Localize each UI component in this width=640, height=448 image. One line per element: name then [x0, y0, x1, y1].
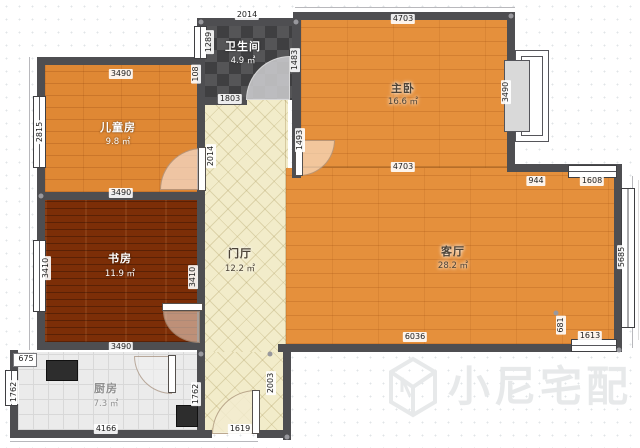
dim-line	[295, 7, 515, 8]
dim-study-right: 3410	[188, 265, 198, 289]
dim-hall-vertical: 2014	[206, 144, 216, 168]
corner-dot	[199, 352, 204, 357]
corner-dot	[199, 20, 204, 25]
dim-living-bottom: 6036	[403, 332, 427, 342]
room-area-living: 28.2 ㎡	[438, 259, 468, 271]
corner-dot	[509, 14, 514, 19]
boundary-hall-living	[285, 100, 286, 344]
room-label-living: 客厅	[441, 243, 465, 259]
dim-kitchen-bottom: 4166	[94, 424, 118, 434]
corner-dot	[294, 20, 299, 25]
wall	[507, 12, 515, 60]
stove	[46, 360, 78, 381]
dim-kitchen-flue: 675	[16, 354, 35, 364]
dim-living-bottom-window: 1613	[578, 331, 602, 341]
room-area-bathroom: 4.9 ㎡	[231, 54, 256, 66]
room-label-master: 主卧	[391, 80, 415, 96]
watermark-text: 小尼宅配	[448, 366, 632, 408]
dim-hall-master-wall: 1493	[295, 128, 305, 152]
corner-dot	[617, 348, 622, 353]
dim-hall-lower-right: 2003	[266, 371, 276, 395]
corner-dot	[285, 435, 290, 440]
dim-children-left: 2815	[35, 120, 45, 144]
dim-living-corner: 681	[556, 315, 566, 334]
dim-living-right: 5685	[617, 245, 627, 269]
sink-unit	[176, 405, 198, 427]
dim-living-top-segment: 944	[526, 176, 545, 186]
room-area-kitchen: 7.3 ㎡	[94, 397, 119, 409]
corner-dot	[268, 352, 273, 357]
room-label-kitchen: 厨房	[94, 380, 118, 396]
floor-plan: 儿童房 9.8 ㎡ 卫生间 4.9 ㎡ 主卧 16.6 ㎡ 门厅 12.2 ㎡ …	[0, 0, 640, 448]
room-area-children: 9.8 ㎡	[106, 135, 131, 147]
door-leaf-kitchen	[168, 355, 176, 393]
dim-entry-bottom: 1619	[228, 424, 252, 434]
dim-study-bottom: 3490	[109, 342, 133, 352]
dim-line	[29, 57, 30, 350]
dim-children-top: 3490	[109, 69, 133, 79]
dim-bath-right: 1483	[290, 48, 300, 72]
door-leaf-children	[198, 147, 206, 191]
dim-study-left: 3410	[41, 256, 51, 280]
room-label-children: 儿童房	[100, 119, 136, 135]
room-area-master: 16.6 ㎡	[388, 95, 418, 107]
room-area-study: 11.9 ㎡	[105, 267, 135, 279]
watermark: 小尼宅配	[388, 356, 632, 418]
dim-master-top: 4703	[391, 14, 415, 24]
dim-living-top-window: 1608	[580, 176, 604, 186]
dim-bath-bottom: 1803	[218, 94, 242, 104]
door-leaf-study	[162, 303, 203, 311]
dim-master-bottom: 4703	[391, 162, 415, 172]
wall	[283, 352, 291, 440]
dim-kitchen-left: 1762	[9, 380, 19, 404]
room-label-bathroom: 卫生间	[225, 38, 261, 54]
dim-line	[638, 180, 639, 340]
dim-bath-window: 1289	[204, 30, 214, 54]
floor-hall	[205, 100, 288, 352]
dim-kitchen-door-side: 1762	[191, 382, 201, 406]
wall	[37, 57, 205, 65]
dim-line	[10, 441, 258, 442]
dim-bath-jog: 108	[191, 64, 201, 83]
corner-dot	[39, 194, 44, 199]
room-label-hall: 门厅	[228, 245, 252, 261]
room-label-study: 书房	[108, 250, 132, 266]
dim-children-bottom: 3490	[109, 188, 133, 198]
door-leaf-entry	[252, 390, 260, 434]
dim-master-bay: 3490	[501, 80, 511, 104]
dim-bath-top: 2014	[235, 10, 259, 20]
room-area-hall: 12.2 ㎡	[225, 262, 255, 274]
cube-logo-icon	[388, 356, 438, 418]
